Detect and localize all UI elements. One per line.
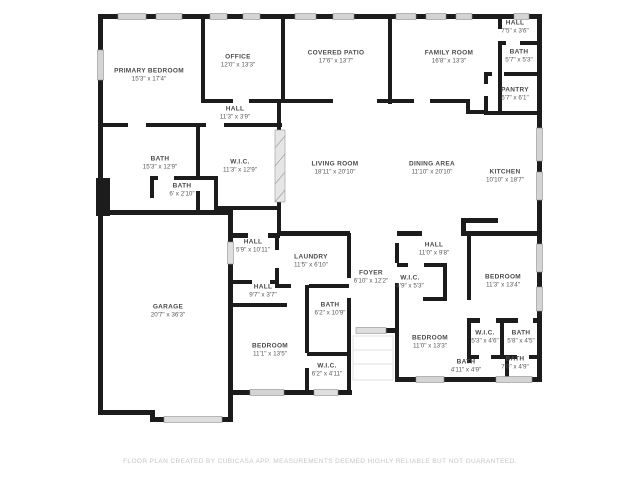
garage-side-door [228,242,234,264]
walls [96,14,542,422]
window-markers [98,14,543,396]
garage-door [164,417,222,423]
bedroom-exterior-door [314,390,338,396]
floor-plan-drawing [0,0,640,480]
footer-disclaimer: FLOOR PLAN CREATED BY CUBICASA APP. MEAS… [0,458,640,465]
floor-plan-page: PRIMARY BEDROOM 15'3" x 17'4" OFFICE 12'… [0,0,640,480]
front-entry-door [356,328,386,334]
hatched-feature [275,130,285,202]
porch-steps [353,336,393,380]
